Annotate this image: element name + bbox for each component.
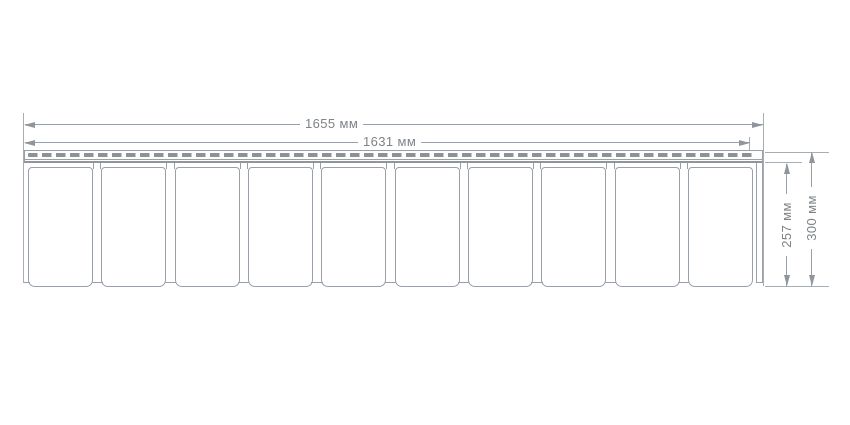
tile-gap-connector <box>606 163 614 169</box>
tile-gap-bridge <box>165 282 176 283</box>
dimension-label-working-height: 257 мм <box>780 194 794 256</box>
extension-line-right <box>763 113 764 286</box>
panel-tile <box>541 167 606 287</box>
tile-gap-connector <box>680 163 688 169</box>
nail-hem-midline <box>25 159 762 160</box>
arrow-down-icon <box>809 275 815 286</box>
extension-line-total-height-top <box>765 152 829 153</box>
panel-tile <box>321 167 386 287</box>
tile-gap-connector <box>93 163 101 169</box>
tile-gap-bridge <box>92 282 103 283</box>
panel-tile <box>688 167 753 287</box>
dimension-label-working-width: 1631 мм <box>358 135 421 149</box>
tile-gap-bridge <box>605 282 616 283</box>
tile-gap-connector <box>460 163 468 169</box>
arrow-left-icon <box>24 122 35 128</box>
panel-tile <box>175 167 240 287</box>
tile-gap-bridge <box>678 282 689 283</box>
tile-gap-connector <box>240 163 248 169</box>
arrow-up-icon <box>784 163 790 174</box>
extension-line-bottom <box>765 286 829 287</box>
panel-tile <box>248 167 313 287</box>
arrow-left-icon <box>24 140 35 146</box>
panel-tile <box>101 167 166 287</box>
extension-line-left <box>23 113 24 283</box>
panel-tile <box>395 167 460 287</box>
tile-gap-bridge <box>385 282 396 283</box>
arrow-right-icon <box>739 140 750 146</box>
arrow-down-icon <box>784 275 790 286</box>
dimension-label-total-width: 1655 мм <box>300 117 363 131</box>
panel-end-profile <box>756 163 763 283</box>
arrow-up-icon <box>809 152 815 163</box>
panel-left-bottom-bridge <box>24 282 30 283</box>
panel-tile <box>615 167 680 287</box>
dimension-label-total-height: 300 мм <box>805 187 819 249</box>
tile-gap-connector <box>166 163 174 169</box>
tile-gap-connector <box>533 163 541 169</box>
tile-gap-bridge <box>311 282 322 283</box>
nail-hem-strip <box>24 150 763 163</box>
tile-gap-bridge <box>531 282 542 283</box>
arrow-right-icon <box>752 122 763 128</box>
tile-gap-connector <box>313 163 321 169</box>
dimension-line-total-width <box>25 124 763 125</box>
tile-gap-bridge <box>458 282 469 283</box>
panel-dimension-drawing: 1655 мм 1631 мм 257 мм 300 мм <box>0 0 850 425</box>
nail-slots-row <box>28 153 752 158</box>
panel-tile <box>468 167 533 287</box>
tile-gap-bridge <box>238 282 249 283</box>
panel-tile <box>28 167 93 287</box>
tile-gap-connector <box>386 163 394 169</box>
